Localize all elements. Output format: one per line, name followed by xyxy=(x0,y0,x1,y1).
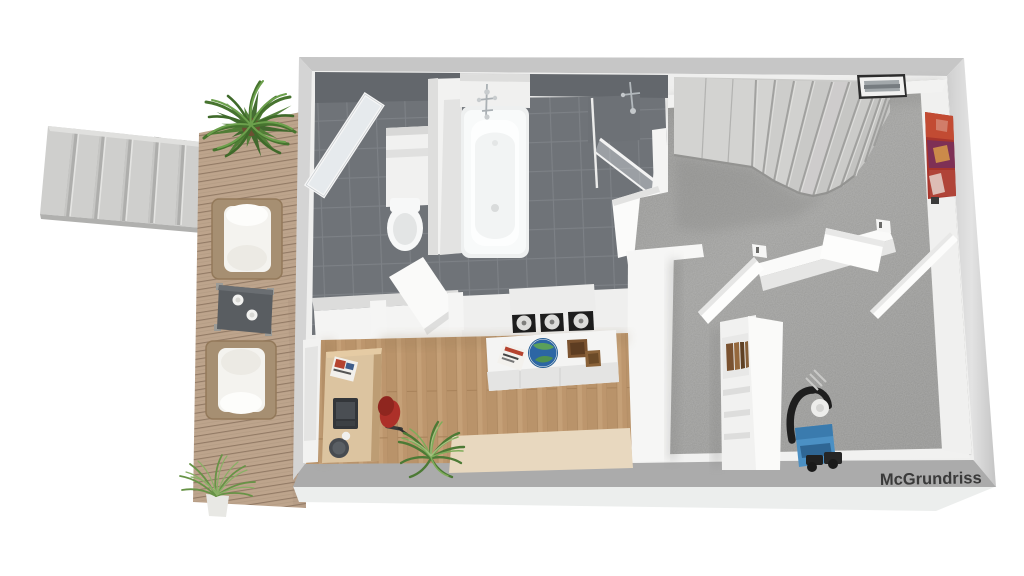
svg-text:McGrundriss: McGrundriss xyxy=(880,469,982,489)
